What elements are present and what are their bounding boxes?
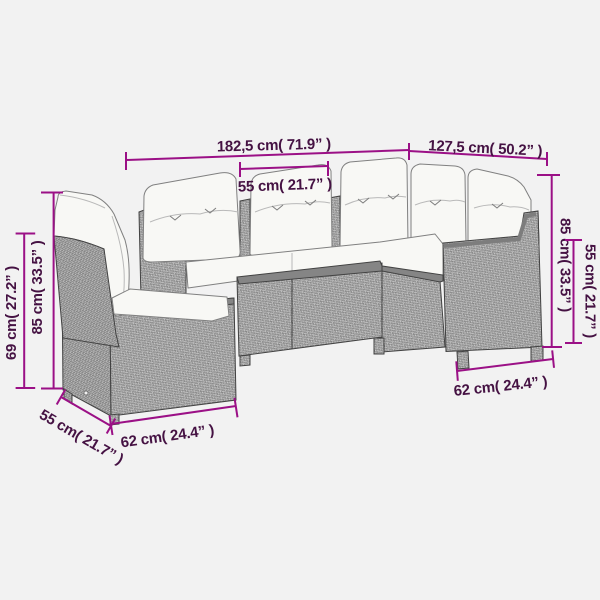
svg-text:55 cm( 21.7” ): 55 cm( 21.7” ) bbox=[582, 244, 599, 338]
svg-text:182,5 cm( 71.9” ): 182,5 cm( 71.9” ) bbox=[217, 136, 332, 156]
svg-text:69 cm( 27.2” ): 69 cm( 27.2” ) bbox=[3, 266, 20, 360]
svg-text:85 cm( 33.5” ): 85 cm( 33.5” ) bbox=[557, 218, 574, 312]
svg-text:85 cm( 33.5” ): 85 cm( 33.5” ) bbox=[29, 240, 46, 334]
svg-text:55 cm( 21.7” ): 55 cm( 21.7” ) bbox=[238, 175, 333, 195]
